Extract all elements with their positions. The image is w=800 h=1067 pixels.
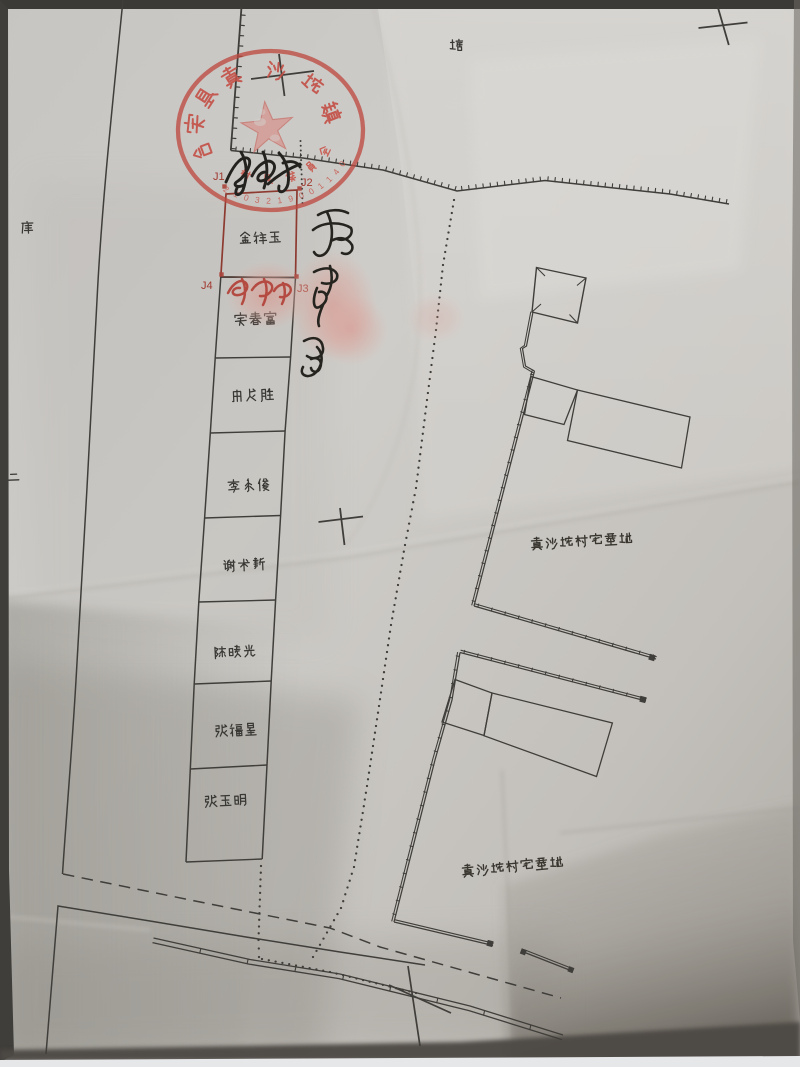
svg-text:J1: J1 [213, 171, 225, 183]
svg-text:J4: J4 [201, 280, 213, 292]
svg-text:2: 2 [266, 196, 271, 206]
